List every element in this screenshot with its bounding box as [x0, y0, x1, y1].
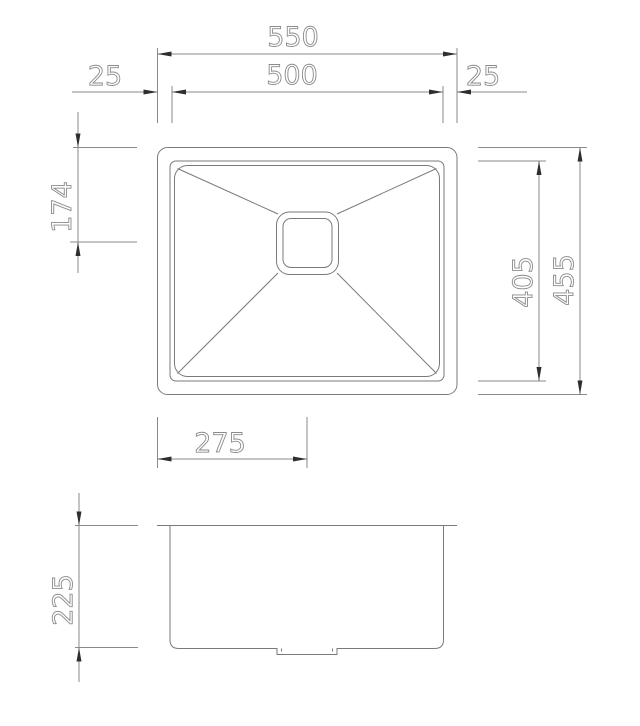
dim-label-drain-from-top: 174 — [47, 181, 78, 233]
dim-right-rim-25: 25 — [457, 61, 527, 95]
dim-bowl-depth-405: 405 — [478, 161, 546, 381]
dim-label-drain-from-left: 275 — [194, 428, 246, 459]
dim-label-overall-width: 550 — [267, 22, 319, 53]
arrow-down-icon — [76, 134, 81, 148]
arrow-right-icon — [144, 90, 158, 95]
arrow-up-icon — [578, 148, 583, 162]
sink-outer-outline — [158, 148, 458, 395]
bowl-profile-outline — [170, 526, 444, 655]
arrow-left-icon — [172, 90, 186, 95]
dim-label-bowl-depth: 405 — [508, 256, 539, 308]
dim-label-bowl-width: 500 — [266, 60, 318, 91]
plan-view — [158, 148, 458, 395]
arrow-right-icon — [429, 90, 443, 95]
dim-label-bowl-height: 225 — [48, 574, 79, 626]
arrow-up-icon — [76, 242, 81, 256]
bowl-rim-inner-line — [175, 166, 440, 377]
arrow-right-icon — [293, 457, 307, 462]
side-view — [157, 526, 457, 655]
bowl-rim-outer-line — [170, 161, 444, 381]
bowl-slope-diagonal-top-left — [178, 169, 279, 215]
arrow-down-icon — [578, 381, 583, 395]
bowl-slope-diagonal-bottom-right — [337, 273, 437, 374]
bowl-slope-diagonal-bottom-left — [178, 273, 279, 374]
dim-label-left-rim: 25 — [88, 61, 122, 92]
dim-drain-from-left-275: 275 — [158, 417, 308, 468]
arrow-right-icon — [443, 52, 457, 57]
dim-bowl-width-500: 500 — [172, 60, 443, 123]
arrow-up-icon — [537, 161, 542, 175]
arrow-up-icon — [77, 648, 82, 662]
arrow-left-icon — [158, 457, 172, 462]
arrow-down-icon — [77, 512, 82, 526]
bowl-slope-diagonal-top-right — [337, 169, 437, 215]
dim-left-rim-25: 25 — [72, 61, 158, 95]
drain-inner-outline — [283, 219, 332, 268]
sink-technical-drawing: 550 500 25 25 174 405 — [0, 0, 640, 726]
dim-bowl-height-225: 225 — [48, 493, 138, 682]
dim-label-overall-depth: 455 — [549, 254, 580, 306]
arrow-down-icon — [537, 367, 542, 381]
dim-drain-from-top-174: 174 — [47, 112, 137, 273]
dim-label-right-rim: 25 — [466, 61, 500, 92]
arrow-left-icon — [158, 52, 172, 57]
